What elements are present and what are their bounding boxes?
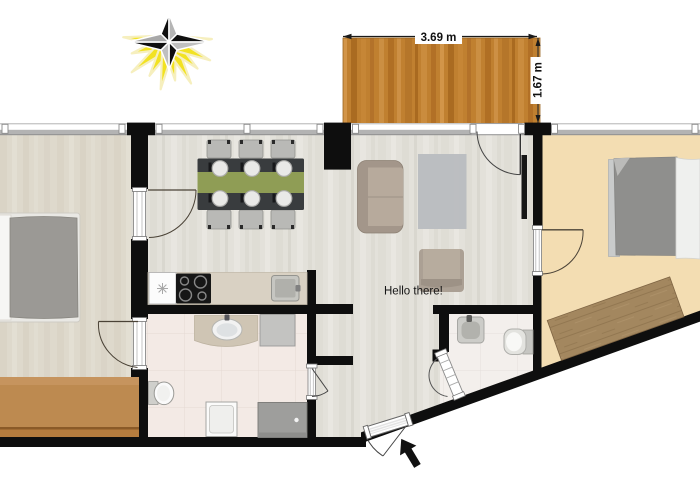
- svg-text:Hello there!: Hello there!: [384, 286, 443, 298]
- svg-text:1.67 m: 1.67 m: [533, 62, 545, 98]
- svg-text:3.69 m: 3.69 m: [421, 32, 457, 44]
